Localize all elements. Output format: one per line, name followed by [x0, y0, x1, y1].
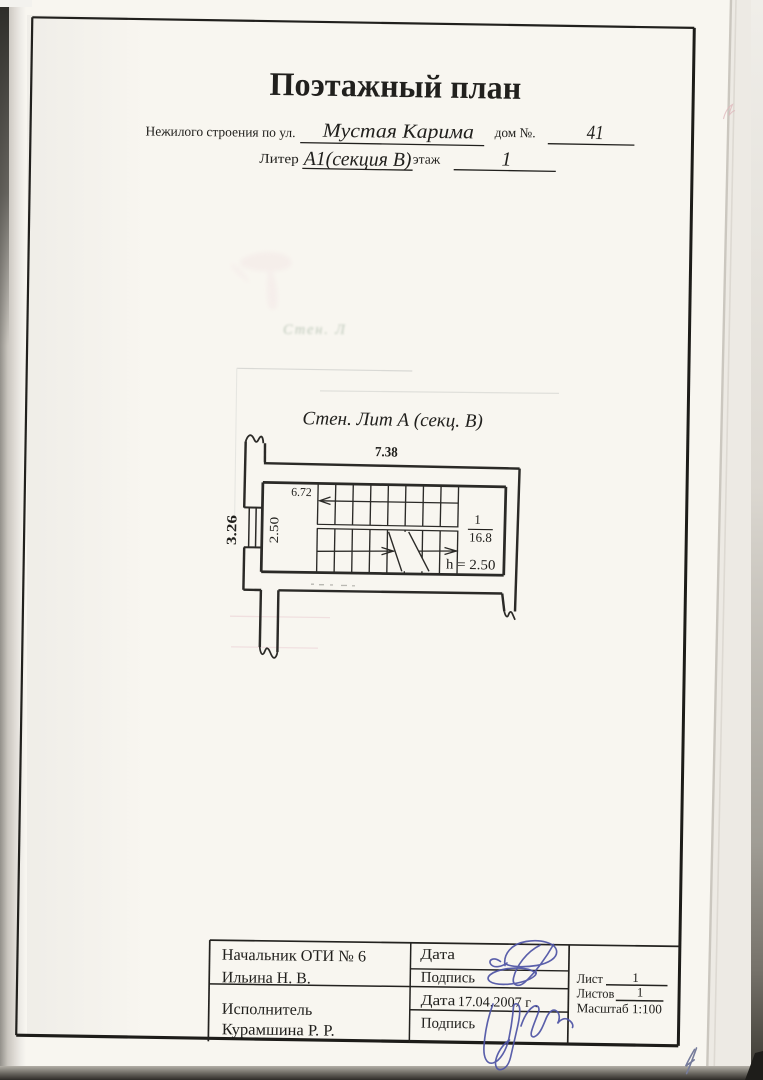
svg-text:1: 1 [501, 149, 511, 171]
svg-text:Подпись: Подпись [421, 1016, 476, 1033]
svg-text:16.8: 16.8 [469, 530, 492, 545]
svg-text:Литер: Литер [259, 151, 299, 166]
svg-text:3.26: 3.26 [225, 515, 241, 545]
svg-text:этаж: этаж [413, 152, 441, 167]
svg-text:Лист: Лист [577, 971, 604, 986]
svg-text:Исполнитель: Исполнитель [222, 1001, 313, 1019]
svg-text:А1(секция В): А1(секция В) [302, 148, 412, 171]
svg-text:41: 41 [587, 122, 604, 144]
svg-text:7.38: 7.38 [375, 445, 398, 460]
svg-text:6.72: 6.72 [291, 485, 312, 499]
svg-text:Мустая Карима: Мустая Карима [321, 120, 474, 144]
svg-text:1: 1 [632, 970, 639, 985]
svg-text:1: 1 [637, 985, 644, 1000]
svg-text:2.50: 2.50 [267, 517, 282, 544]
svg-text:Стен. Л: Стен. Л [283, 322, 346, 338]
svg-text:Дата: Дата [421, 993, 456, 1009]
svg-text:Нежилого строения по ул.: Нежилого строения по ул. [145, 124, 295, 141]
svg-text:Стен. Лит А (секц. В): Стен. Лит А (секц. В) [302, 408, 483, 432]
svg-text:Поэтажный план: Поэтажный план [269, 67, 521, 107]
svg-text:h = 2.50: h = 2.50 [446, 558, 496, 574]
svg-text:Подпись: Подпись [421, 970, 476, 987]
svg-text:Листов: Листов [577, 985, 615, 1001]
svg-text:Ильина Н. В.: Ильина Н. В. [222, 969, 311, 987]
svg-text:Курамшина Р. Р.: Курамшина Р. Р. [222, 1021, 335, 1039]
svg-text:дом №.: дом №. [495, 125, 536, 140]
svg-text:1: 1 [474, 512, 481, 527]
svg-text:Масштаб 1:100: Масштаб 1:100 [577, 1000, 662, 1016]
svg-text:17.04.2007 г .: 17.04.2007 г . [458, 994, 539, 1011]
svg-text:Дата: Дата [420, 947, 455, 963]
svg-text:Начальник ОТИ № 6: Начальник ОТИ № 6 [222, 947, 366, 966]
